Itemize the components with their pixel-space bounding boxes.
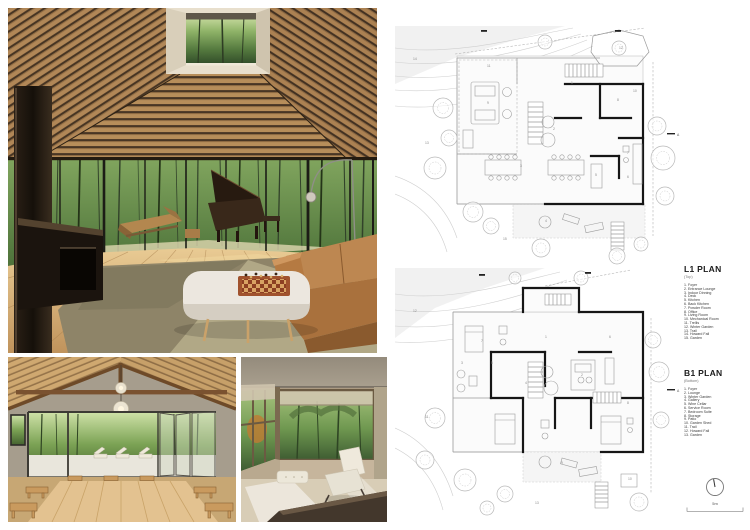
- room-number: 11: [425, 415, 429, 419]
- room-number: 4: [545, 219, 547, 223]
- corner-window-main: [280, 390, 374, 460]
- room-number: 13: [535, 501, 539, 505]
- room-number: 4: [525, 381, 527, 385]
- glass-wall: [11, 412, 216, 477]
- b1-plan-title: B1 PLAN: [684, 368, 746, 378]
- b1-floor-plan: A 12345678910111213: [395, 268, 681, 522]
- nook-ceiling: [241, 357, 387, 387]
- room-number: 8: [627, 401, 629, 405]
- room-number: 13: [425, 141, 429, 145]
- folding-doors: [160, 412, 215, 477]
- room-number: 12: [413, 309, 417, 313]
- room-number: 15: [503, 237, 507, 241]
- room-number: 3: [520, 164, 522, 168]
- right-wall: [374, 387, 387, 492]
- svg-text:A: A: [677, 133, 680, 137]
- l1-plan-title: L1 PLAN: [684, 264, 746, 274]
- room-number: 6: [627, 175, 629, 179]
- room-number: 2: [553, 127, 555, 131]
- room-number: 2: [581, 373, 583, 377]
- room-number: 7: [627, 151, 629, 155]
- scale-bar: [686, 506, 744, 513]
- corner-window-left: [241, 384, 275, 471]
- dining-pavilion-render: [8, 357, 236, 522]
- room-number: 10: [633, 89, 637, 93]
- b1-plan-subtitle: (Bottom): [684, 379, 746, 383]
- room-number: 1: [571, 81, 573, 85]
- l1-plan-subtitle: (Top): [684, 275, 746, 279]
- l1-floor-plan: A 123456789101112131415: [395, 26, 681, 266]
- b1-patio: [523, 452, 601, 482]
- floor-cushion: [277, 471, 308, 483]
- room-number: 12: [619, 46, 623, 50]
- room-number: 8: [617, 98, 619, 102]
- legend-item: 13. Garden: [684, 434, 746, 438]
- room-number: 5: [595, 173, 597, 177]
- legend-item: 15. Garden: [684, 337, 746, 341]
- l1-legend-list: 1. Foyer2. Entrance Lounge3. Indoor Dinn…: [684, 284, 746, 341]
- room-number: 11: [487, 64, 491, 68]
- room-number: 3: [461, 361, 463, 365]
- room-number: 6: [609, 335, 611, 339]
- north-arrow-icon: [686, 476, 744, 498]
- chess-board: [238, 273, 290, 296]
- living-room-render: [8, 8, 377, 353]
- roller-shade: [280, 390, 374, 405]
- side-window: [11, 415, 25, 445]
- room-number: 5: [491, 361, 493, 365]
- room-number: 14: [413, 57, 417, 61]
- compass-scale-block: 5m: [686, 476, 744, 513]
- wood-platform: [8, 476, 236, 522]
- coffee-table: [174, 271, 318, 343]
- l1-legend: L1 PLAN (Top) 1. Foyer2. Entrance Lounge…: [684, 264, 746, 341]
- room-number: 7: [481, 339, 483, 343]
- skylight: [166, 8, 270, 74]
- b1-legend-list: 1. Foyer2. Lounge3. Winter Garden4. Gall…: [684, 388, 746, 437]
- room-number: 9: [561, 461, 563, 465]
- window-nook-render: [241, 357, 387, 522]
- room-number: 10: [628, 477, 632, 481]
- l1-slab: [457, 56, 643, 204]
- room-number: 9: [487, 101, 489, 105]
- room-number: 1: [545, 335, 547, 339]
- presentation-board: A 123456789101112131415: [0, 0, 750, 530]
- corner-post: [275, 387, 280, 471]
- b1-legend: B1 PLAN (Bottom) 1. Foyer2. Lounge3. Win…: [684, 368, 746, 437]
- svg-text:A: A: [677, 389, 680, 393]
